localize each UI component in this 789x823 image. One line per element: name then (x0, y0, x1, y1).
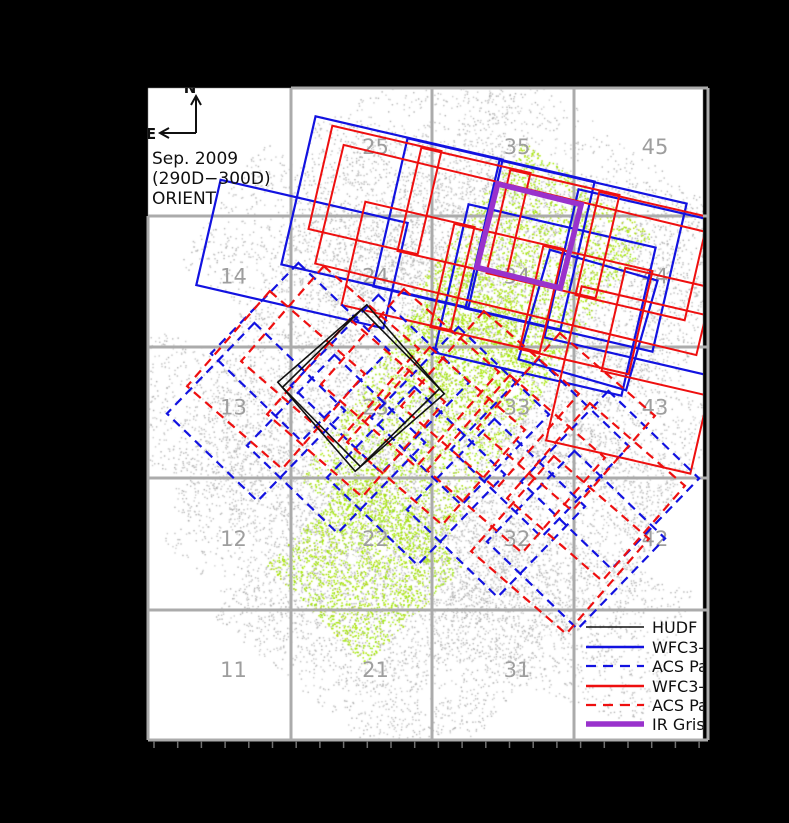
legend-item: IR Grism (586, 715, 720, 734)
legend-label: HUDF (652, 618, 697, 637)
tile-label-11: 11 (220, 658, 247, 682)
pointing-outlines (167, 116, 766, 634)
legend: HUDFWFC3-IACS PaWFC3-IACS PaIR Grism (586, 618, 720, 734)
range-annotation: (290D−300D) (152, 169, 271, 189)
tile-label-31: 31 (504, 658, 531, 682)
tile-label-22: 22 (362, 527, 389, 551)
acs-parallel-blue (521, 391, 699, 569)
wfc3-pointing-blue (196, 180, 407, 328)
legend-item: WFC3-I (586, 677, 709, 696)
survey-pointing-figure: 112131122232421323334314243444253545 N E… (0, 0, 789, 823)
wfc3-pointing-red (431, 224, 564, 352)
legend-item: HUDF (586, 618, 697, 637)
legend-item: WFC3-I (586, 638, 709, 657)
tile-label-21: 21 (362, 658, 389, 682)
annotation-block: N E Sep. 2009 (290D−300D) ORIENT (146, 79, 271, 209)
legend-label: WFC3-I (652, 677, 709, 696)
legend-label: ACS Pa (652, 696, 708, 715)
acs-parallel-blue (451, 359, 629, 537)
legend-item: ACS Pa (586, 696, 708, 715)
figure-overlay: 112131122232421323334314243444253545 N E… (0, 0, 789, 823)
compass-east-label: E (146, 125, 156, 143)
orient-annotation: ORIENT (152, 189, 217, 209)
wfc3-pointing-red (398, 148, 531, 276)
legend-label: IR Grism (652, 715, 720, 734)
tile-label-35: 35 (504, 135, 531, 159)
tile-label-45: 45 (642, 135, 669, 159)
tile-label-13: 13 (220, 396, 247, 420)
wfc3-pointing-red (315, 145, 725, 355)
legend-item: ACS Pa (586, 657, 708, 676)
legend-label: ACS Pa (652, 657, 708, 676)
acs-parallel-blue (167, 323, 345, 501)
legend-label: WFC3-I (652, 638, 709, 657)
tile-label-33: 33 (504, 396, 531, 420)
tile-label-14: 14 (220, 265, 247, 289)
compass-arrows (160, 96, 201, 138)
tile-label-12: 12 (220, 527, 247, 551)
compass-north-label: N (184, 79, 197, 97)
compass: N E (146, 79, 201, 143)
date-annotation: Sep. 2009 (152, 149, 238, 169)
